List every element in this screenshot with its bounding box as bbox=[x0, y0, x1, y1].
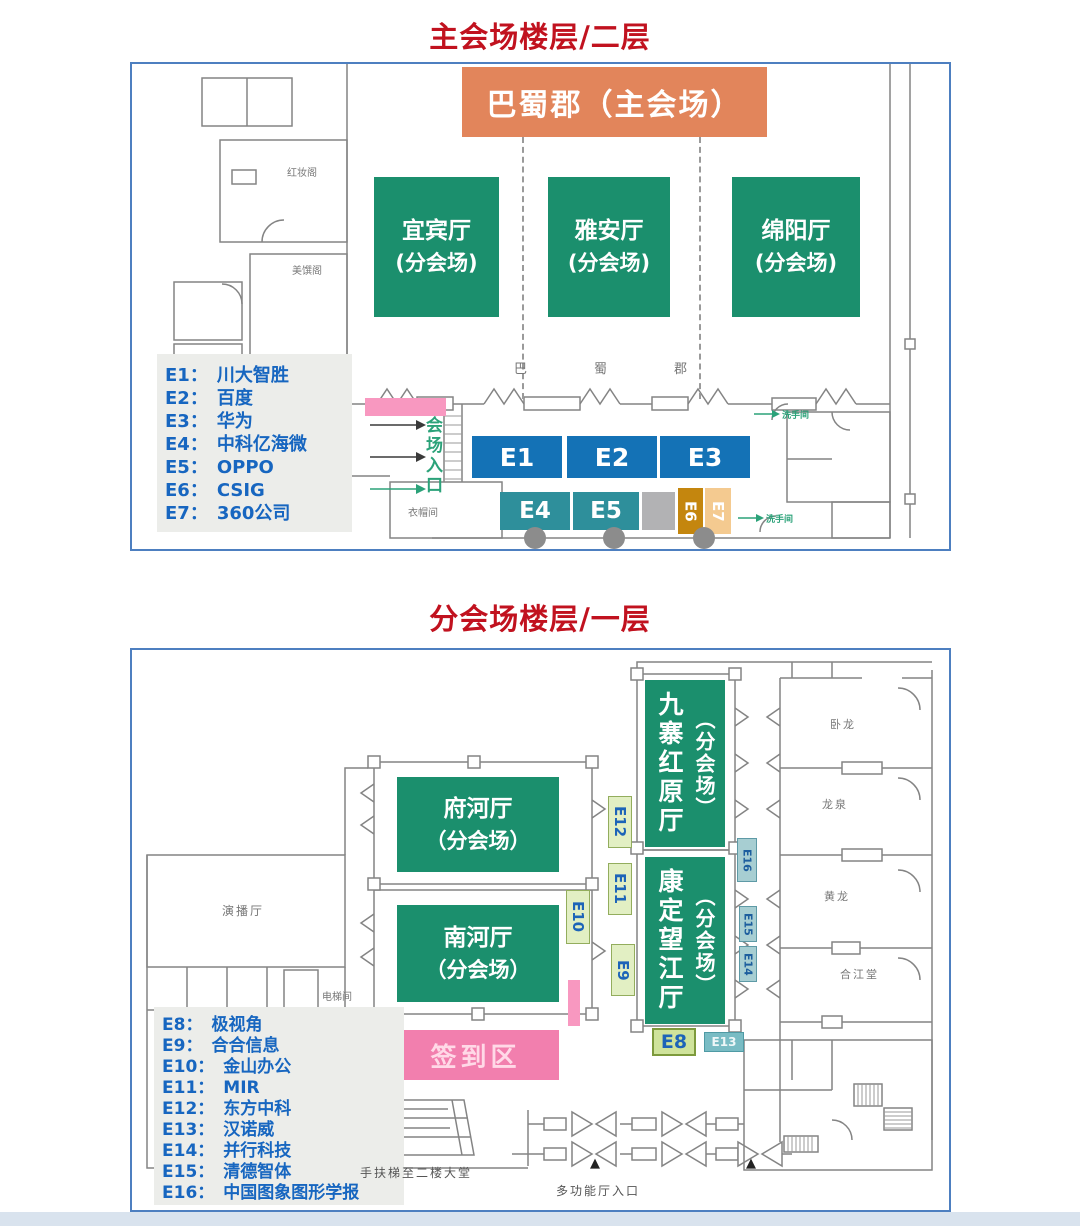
legend-row: E7：360公司 bbox=[165, 502, 352, 525]
wall-char-ba: 巴 bbox=[514, 358, 527, 377]
hall-kangding-name: 康定望江厅 bbox=[651, 868, 687, 1013]
legend-row: E11：MIR bbox=[162, 1078, 404, 1099]
legend-row: E10：金山办公 bbox=[162, 1057, 404, 1078]
hall-yibin-sub: (分会场) bbox=[395, 248, 477, 278]
escalator-note: 手扶梯至二楼大堂 bbox=[360, 1164, 472, 1181]
column-dot bbox=[603, 527, 625, 549]
hall-mianyang-sub: (分会场) bbox=[755, 248, 837, 278]
tag-e9: E9 bbox=[611, 944, 635, 996]
tag-e11: E11 bbox=[608, 863, 632, 915]
legend-row: E6：CSIG bbox=[165, 479, 352, 502]
wall-char-jun: 郡 bbox=[674, 358, 687, 377]
hall-fuhe: 府河厅 （分会场） bbox=[397, 777, 559, 872]
column-dot bbox=[693, 527, 715, 549]
tag-e15: E15 bbox=[739, 906, 757, 942]
booth-e3: E3 bbox=[660, 436, 750, 478]
legend-row: E5：OPPO bbox=[165, 456, 352, 479]
floor1-title: 分会场楼层/一层 bbox=[0, 596, 1080, 638]
room-wolong-label: 卧龙 bbox=[830, 716, 856, 732]
hall-fuhe-sub: （分会场） bbox=[426, 826, 531, 856]
legend-row: E16：中国图象图形学报 bbox=[162, 1183, 404, 1204]
legend-row: E1：川大智胜 bbox=[165, 364, 352, 387]
hall-jiuzhai-name: 九寨红原厅 bbox=[651, 691, 687, 836]
legend-row: E4：中科亿海微 bbox=[165, 433, 352, 456]
tag-e10: E10 bbox=[566, 890, 590, 944]
room-meizhuan-label: 美馔阁 bbox=[292, 262, 322, 277]
hall-mianyang-name: 绵阳厅 bbox=[762, 215, 831, 248]
legend-row: E9：合合信息 bbox=[162, 1036, 404, 1057]
hall-kangding-sub: （分会场） bbox=[690, 886, 719, 996]
booth-e5: E5 bbox=[573, 492, 639, 530]
booth-e1: E1 bbox=[472, 436, 562, 478]
legend-row: E14：并行科技 bbox=[162, 1141, 404, 1162]
floor1-panel: 府河厅 （分会场） 南河厅 （分会场） 九寨红原厅 （分会场） 康定望江厅 （分… bbox=[130, 648, 951, 1212]
entrance-triangle: ▲ bbox=[590, 1156, 600, 1171]
hall-mianyang: 绵阳厅 (分会场) bbox=[732, 177, 860, 317]
main-hall-banner: 巴蜀郡（主会场） bbox=[462, 67, 767, 137]
hall-kangding: 康定望江厅 （分会场） bbox=[645, 857, 725, 1024]
restroom-label-bottom: 洗手间 bbox=[766, 512, 793, 525]
booth-e2: E2 bbox=[567, 436, 657, 478]
hall-yibin: 宜宾厅 (分会场) bbox=[374, 177, 499, 317]
tag-e14: E14 bbox=[739, 946, 757, 982]
legend-floor2: E1：川大智胜 E2：百度 E3：华为 E4：中科亿海微 E5：OPPO E6：… bbox=[157, 354, 352, 532]
hall-yaan-sub: (分会场) bbox=[568, 248, 650, 278]
legend-row: E2：百度 bbox=[165, 387, 352, 410]
wall-char-shu: 蜀 bbox=[594, 358, 607, 377]
tag-e16: E16 bbox=[737, 838, 757, 882]
room-hejiangtang-label: 合江堂 bbox=[840, 966, 879, 982]
hall-yaan-name: 雅安厅 bbox=[575, 215, 644, 248]
hall-jiuzhai-sub: （分会场） bbox=[690, 709, 719, 819]
floor2-title: 主会场楼层/二层 bbox=[0, 14, 1080, 56]
room-huanglong-label: 黄龙 bbox=[824, 888, 850, 904]
floor2-panel: 巴 蜀 郡 巴蜀郡（主会场） 宜宾厅 (分会场) 雅安厅 (分会场) 绵阳厅 (… bbox=[130, 62, 951, 551]
entrance-label: 会场入口 bbox=[420, 416, 445, 512]
hall-yibin-name: 宜宾厅 bbox=[402, 215, 471, 248]
studio-label: 演播厅 bbox=[222, 902, 264, 919]
booth-empty bbox=[642, 492, 675, 530]
hall-fuhe-name: 府河厅 bbox=[444, 793, 513, 826]
booth-e4: E4 bbox=[500, 492, 570, 530]
entrance-triangle: ▲ bbox=[746, 1156, 756, 1171]
floorplan-page: 主会场楼层/二层 bbox=[0, 0, 1080, 1226]
booth-e7: E7 bbox=[705, 488, 731, 534]
entrance-note: 多功能厅入口 bbox=[556, 1182, 640, 1199]
room-longquan-label: 龙泉 bbox=[822, 796, 848, 812]
legend-row: E12：东方中科 bbox=[162, 1099, 404, 1120]
hall-nanhe-sub: （分会场） bbox=[426, 955, 531, 985]
signin-area: 签到区 bbox=[392, 1030, 559, 1080]
hall-nanhe-name: 南河厅 bbox=[444, 922, 513, 955]
entrance-pink-bar bbox=[365, 398, 446, 416]
hall-jiuzhai: 九寨红原厅 （分会场） bbox=[645, 680, 725, 847]
elevator-label: 电梯间 bbox=[322, 988, 352, 1003]
page-bottom-strip bbox=[0, 1212, 1080, 1226]
restroom-label-top: 洗手间 bbox=[782, 408, 809, 421]
hall-nanhe: 南河厅 （分会场） bbox=[397, 905, 559, 1002]
legend-row: E3：华为 bbox=[165, 410, 352, 433]
tag-e8: E8 bbox=[652, 1028, 696, 1056]
tag-e13: E13 bbox=[704, 1032, 744, 1052]
pink-strip bbox=[568, 980, 580, 1026]
tag-e12: E12 bbox=[608, 796, 632, 848]
legend-row: E8：极视角 bbox=[162, 1015, 404, 1036]
room-hongzhuang-label: 红妆阁 bbox=[287, 164, 317, 179]
column-dot bbox=[524, 527, 546, 549]
legend-row: E13：汉诺威 bbox=[162, 1120, 404, 1141]
cloakroom-label: 衣帽间 bbox=[408, 504, 438, 519]
hall-yaan: 雅安厅 (分会场) bbox=[548, 177, 670, 317]
dashed-divider-right bbox=[699, 137, 701, 399]
